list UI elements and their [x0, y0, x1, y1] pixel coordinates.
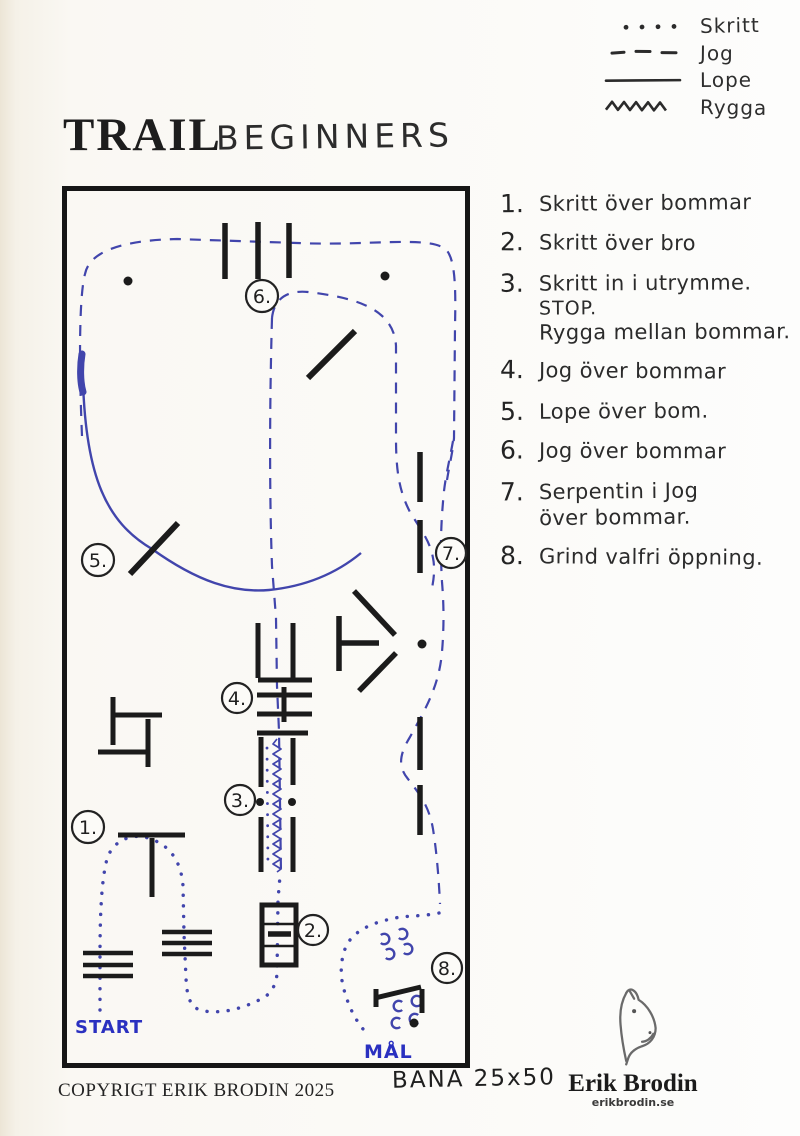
instruction-text-line: Serpentin i Jog: [539, 479, 699, 506]
dashed-line-icon: [604, 45, 688, 60]
instruction-number: 7.: [500, 478, 529, 533]
instruction-item-3: 3. Skritt in i utrymme. STOP. Rygga mell…: [500, 267, 798, 346]
obstacles: [83, 222, 427, 1028]
instruction-number: 6.: [500, 436, 528, 465]
single-bom-top: [308, 331, 355, 378]
svg-text:2.: 2.: [304, 920, 322, 942]
instruction-item-7: 7. Serpentin i Jog över bommar.: [500, 475, 799, 532]
copyright-text: COPYRIGT ERIK BRODIN 2025: [58, 1080, 335, 1102]
instruction-text-line: Skritt in i utrymme.: [539, 270, 790, 297]
instruction-item-2: 2. Skritt över bro: [500, 227, 798, 258]
lope-path: [83, 382, 361, 590]
instruction-item-1: 1. Skritt över bommar: [500, 187, 798, 219]
instruction-number: 2.: [500, 227, 528, 256]
corner-obstacle: [98, 697, 162, 767]
page-subtitle: BEGINNERS: [216, 115, 454, 157]
zigzag-line-icon: [604, 97, 688, 114]
legend-item-skritt: Skritt: [604, 10, 794, 40]
gate-swing-marks: [381, 929, 420, 1028]
svg-text:4.: 4.: [228, 688, 246, 710]
cone-dot: [418, 640, 427, 649]
fan-obstacle: [339, 591, 396, 691]
instruction-number: 3.: [500, 269, 528, 347]
instruction-number: 8.: [500, 541, 528, 570]
walk-poles-b: [162, 932, 212, 954]
goal-label: MÅL: [364, 1039, 413, 1063]
obstacle-5-bom: [130, 523, 178, 574]
svg-text:1.: 1.: [79, 817, 97, 839]
instruction-text: Serpentin i Jog över bommar.: [539, 476, 699, 532]
legend-label-skritt: Skritt: [700, 12, 760, 37]
marker-1: 1.: [72, 811, 104, 843]
marker-2: 2.: [298, 915, 328, 945]
instruction-text: Grind valfri öppning.: [539, 541, 763, 572]
instruction-text: Skritt över bommar: [539, 187, 752, 218]
course-paths: [80, 239, 455, 1029]
marker-8: 8.: [432, 953, 462, 983]
cone-dot: [410, 1019, 419, 1028]
arena-size-label: BANA 25x50: [392, 1064, 556, 1093]
legend-item-lope: Lope: [604, 65, 794, 93]
marker-5: 5.: [82, 544, 114, 576]
cone-dot: [288, 798, 296, 806]
instruction-item-8: 8. Grind valfri öppning.: [500, 541, 798, 572]
instruction-text-line: STOP.: [539, 296, 790, 320]
jog-path-outer-loop: [80, 239, 455, 480]
skritt-path-chute: [267, 748, 268, 870]
marker-7: 7.: [436, 538, 466, 568]
svg-text:8.: 8.: [438, 958, 456, 980]
brand-logo: Erik Brodin erikbrodin.se: [558, 984, 708, 1109]
instruction-text: Skritt in i utrymme. STOP. Rygga mellan …: [539, 267, 791, 346]
cone-dot: [124, 277, 133, 286]
cone-dot: [256, 798, 264, 806]
marker-6: 6.: [246, 280, 278, 312]
dotted-line-icon: [604, 19, 688, 34]
instruction-item-4: 4. Jog över bommar: [500, 355, 798, 386]
instruction-text: Jog över bommar: [539, 356, 726, 386]
cone-dot: [381, 272, 390, 281]
instruction-list: 1. Skritt över bommar 2. Skritt över bro…: [500, 188, 798, 582]
instruction-item-6: 6. Jog över bommar: [500, 436, 798, 466]
start-label: START: [75, 1017, 143, 1038]
legend-label-rygga: Rygga: [700, 95, 768, 120]
svg-text:3.: 3.: [231, 790, 249, 812]
course-markers: 1. 2. 3. 4. 5. 6. 7. 8.: [72, 280, 466, 983]
horse-head-icon: [596, 984, 670, 1070]
obstacle-6-poles: [225, 222, 289, 279]
walk-poles-a: [83, 953, 133, 976]
instruction-text: Lope över bom.: [539, 396, 709, 426]
marker-3: 3.: [225, 785, 255, 815]
legend: Skritt Jog Lope Rygga: [604, 12, 794, 120]
instruction-number: 1.: [500, 189, 528, 218]
marker-4: 4.: [222, 683, 252, 713]
instruction-number: 5.: [500, 397, 528, 426]
obstacle-4-poles: [257, 623, 312, 722]
obstacle-3-chute: [257, 733, 308, 872]
course-map: START MÅL: [62, 186, 470, 1068]
legend-label-lope: Lope: [700, 67, 752, 91]
legend-item-jog: Jog: [604, 38, 794, 67]
svg-text:7.: 7.: [442, 543, 460, 565]
legend-item-rygga: Rygga: [604, 92, 794, 122]
instruction-text: Skritt över bro: [539, 227, 696, 257]
solid-line-icon: [604, 73, 688, 88]
skritt-path-start: [100, 836, 280, 1011]
legend-label-jog: Jog: [700, 41, 734, 65]
instruction-text-line: Rygga mellan bommar.: [539, 319, 790, 346]
svg-text:5.: 5.: [89, 550, 107, 572]
lope-path-start-blob: [81, 354, 83, 392]
instruction-item-5: 5. Lope över bom.: [500, 395, 798, 426]
obstacle-1-t-poles: [118, 835, 185, 897]
page-title: TRAIL: [63, 108, 222, 162]
svg-text:6.: 6.: [253, 286, 271, 308]
brand-name: Erik Brodin: [558, 1070, 708, 1098]
instruction-text: Jog över bommar: [539, 436, 726, 466]
instruction-text-line: över bommar.: [539, 504, 699, 531]
instruction-number: 4.: [500, 355, 528, 384]
